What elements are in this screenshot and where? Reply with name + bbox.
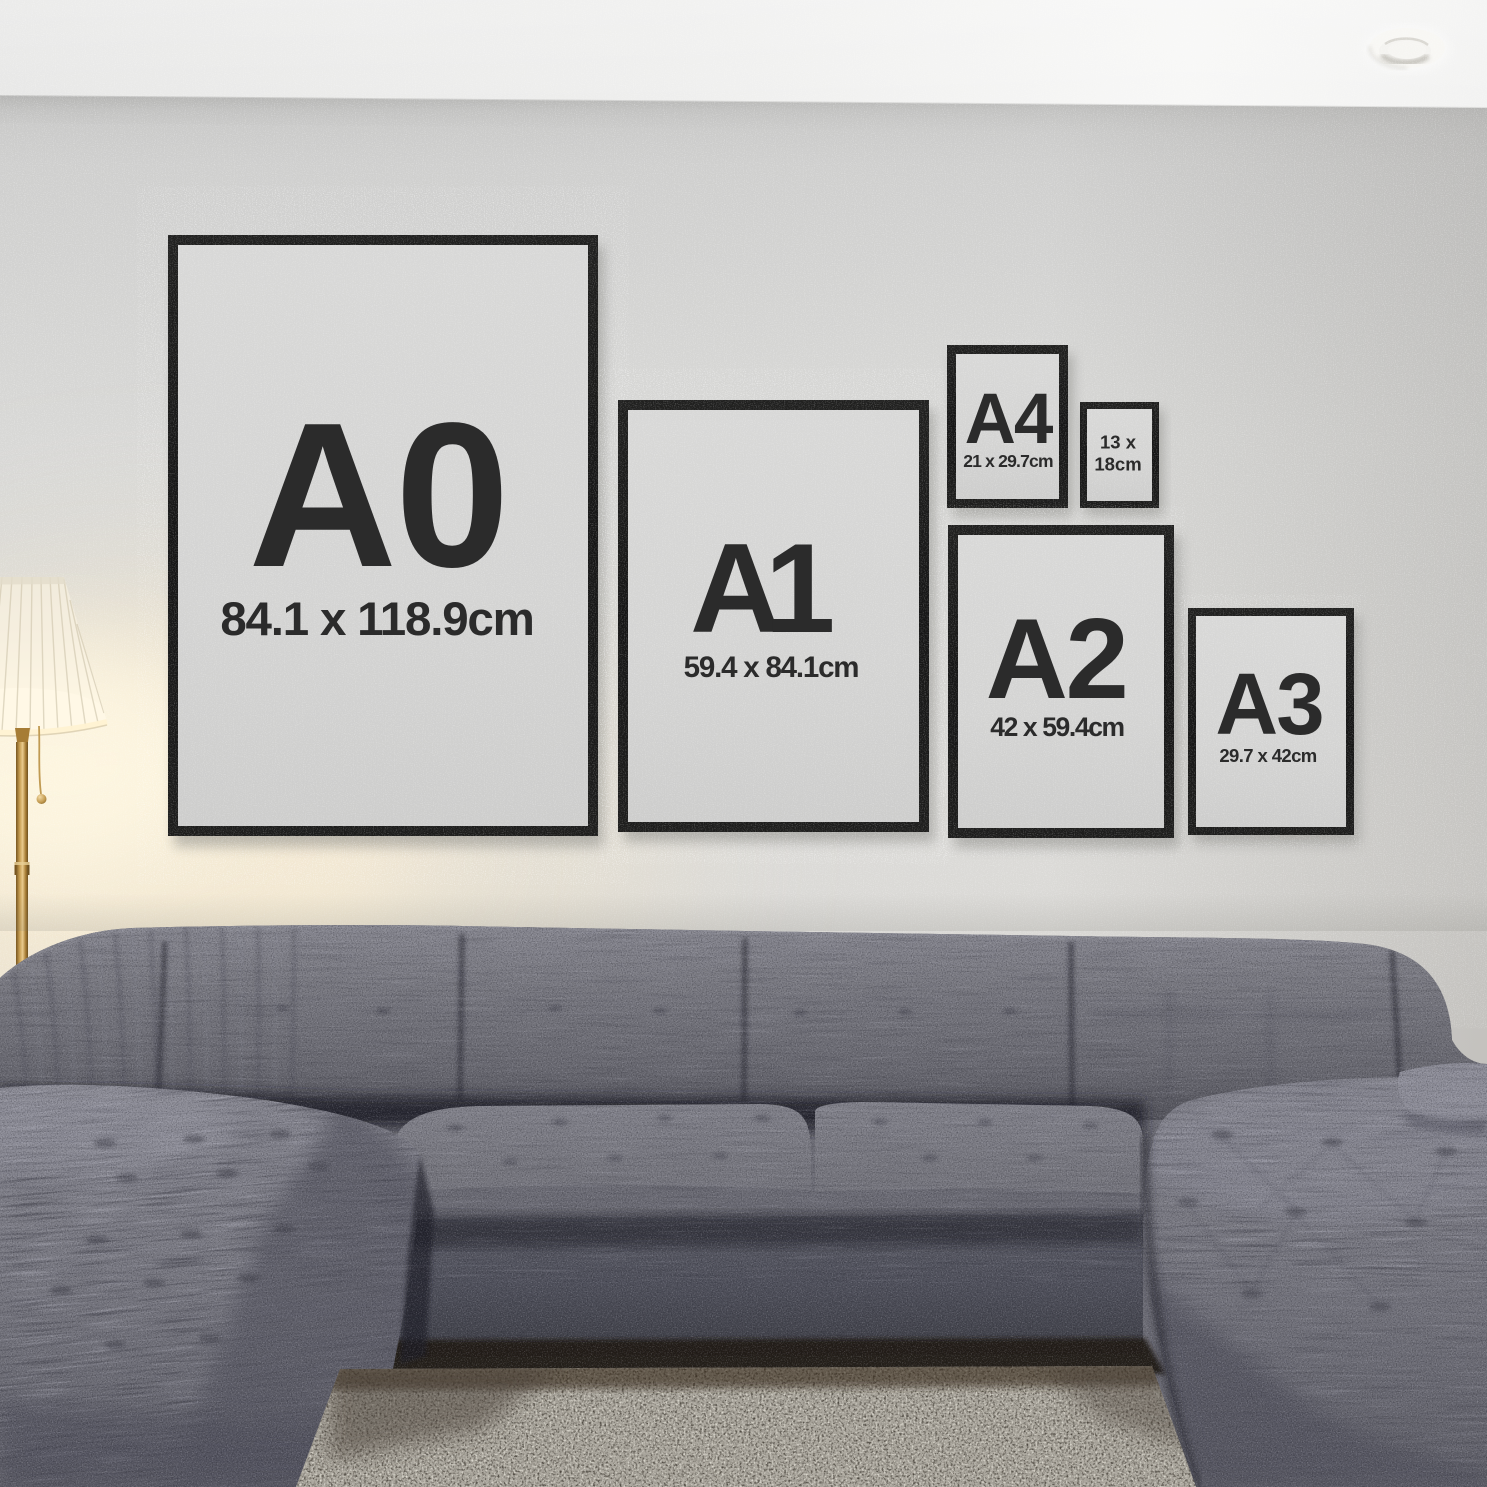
svg-text:A0: A0 — [248, 380, 507, 610]
svg-text:84.1 x 118.9cm: 84.1 x 118.9cm — [220, 593, 533, 646]
svg-text:21 x 29.7cm: 21 x 29.7cm — [963, 451, 1053, 471]
svg-text:59.4 x 84.1cm: 59.4 x 84.1cm — [684, 651, 859, 684]
svg-text:29.7 x 42cm: 29.7 x 42cm — [1219, 745, 1316, 766]
svg-text:A2: A2 — [986, 596, 1127, 723]
svg-text:A4: A4 — [965, 380, 1054, 459]
svg-text:A3: A3 — [1215, 656, 1322, 753]
svg-text:A1: A1 — [690, 517, 835, 659]
svg-text:42 x 59.4cm: 42 x 59.4cm — [990, 712, 1123, 742]
svg-text:18cm: 18cm — [1094, 454, 1141, 475]
svg-text:13 x: 13 x — [1100, 432, 1137, 453]
